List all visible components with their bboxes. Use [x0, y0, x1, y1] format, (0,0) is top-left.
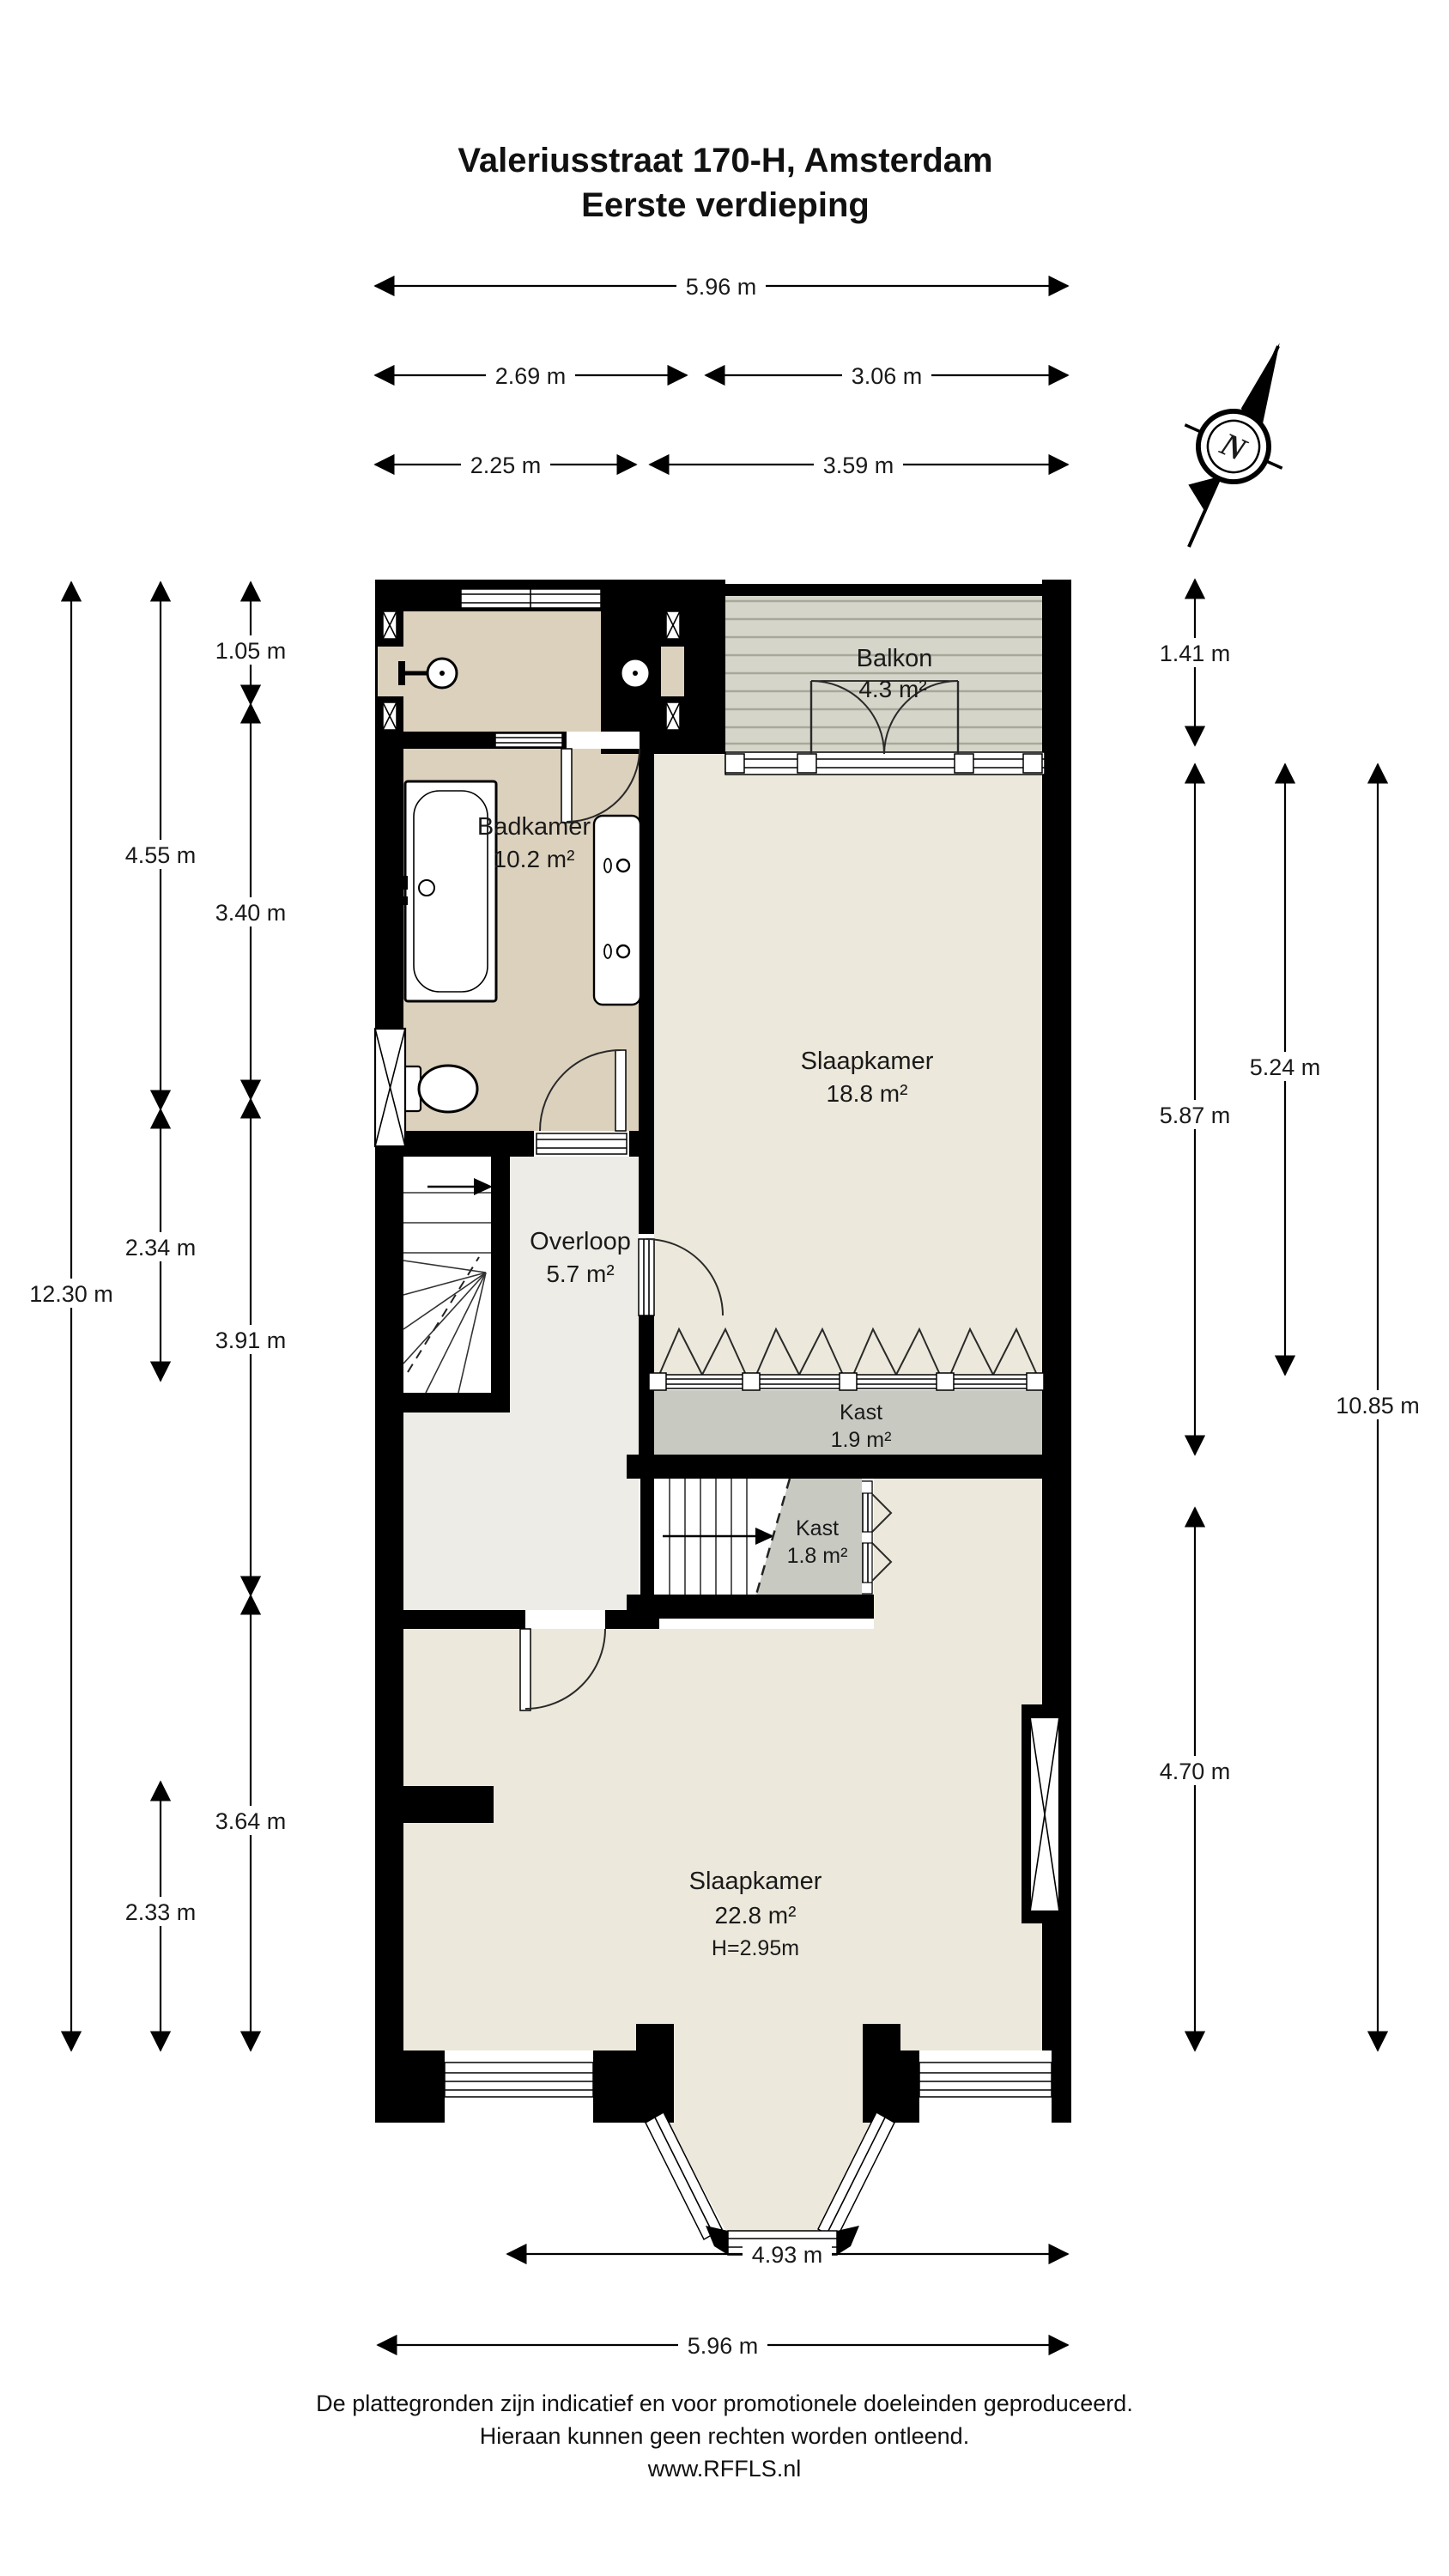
- rail-post: [725, 754, 744, 773]
- wall-stair2-left: [640, 1479, 654, 1597]
- wall-left-outer: [375, 580, 403, 2050]
- wall-bottom-corner-left: [375, 2050, 445, 2123]
- dim-top-269: 2.69 m: [375, 361, 687, 390]
- bedroom2-upper-floor: [874, 1479, 1042, 1633]
- room-kast2-area: 1.8 m²: [787, 1544, 848, 1568]
- threshold-badkamer-door: [537, 1133, 627, 1154]
- title-block: Valeriusstraat 170-H, Amsterdam Eerste v…: [458, 142, 992, 224]
- page-title: Valeriusstraat 170-H, Amsterdam: [458, 142, 992, 179]
- dim-left-1230: 12.30 m: [20, 582, 123, 2050]
- wall-niche-right: [661, 647, 684, 696]
- footer-website: www.RFFLS.nl: [647, 2456, 802, 2482]
- closet-post: [1027, 1373, 1044, 1390]
- room-slaapkamer2-name: Slaapkamer: [689, 1868, 822, 1895]
- svg-text:5.96 m: 5.96 m: [688, 2333, 759, 2359]
- dim-left-233: 2.33 m: [116, 1782, 205, 2050]
- room-slaapkamer2-ceiling: H=2.95m: [712, 1936, 799, 1960]
- dim-total-width: 5.96 m: [375, 271, 1068, 301]
- svg-text:5.24 m: 5.24 m: [1250, 1054, 1321, 1080]
- dim-right-470: 4.70 m: [1150, 1508, 1240, 2050]
- dimensions-left: 12.30 m 4.55 m 2.34 m 2.33 m 1.05 m 3.40…: [20, 582, 295, 2050]
- bay-mullion-right: [837, 2226, 859, 2255]
- chimney-shaft: [1030, 1717, 1059, 1911]
- dimensions-right: 1.41 m 5.87 m 4.70 m 5.24 m 10.85 m: [1150, 580, 1429, 2050]
- room-slaapkamer1-name: Slaapkamer: [801, 1048, 934, 1075]
- svg-text:4.55 m: 4.55 m: [125, 842, 197, 868]
- window-strip-divider: [495, 733, 562, 747]
- closet-post: [840, 1373, 857, 1390]
- room-overloop-area: 5.7 m²: [546, 1261, 614, 1287]
- wall-bay-pier-left: [636, 2024, 674, 2052]
- svg-text:1.05 m: 1.05 m: [215, 638, 287, 664]
- wall-shaft-lower-right: [666, 702, 680, 730]
- room-balkon-area: 4.3 m²: [858, 676, 926, 702]
- footer-line-1: De plattegronden zijn indicatief en voor…: [316, 2391, 1133, 2416]
- svg-text:12.30 m: 12.30 m: [29, 1281, 113, 1307]
- svg-text:4.93 m: 4.93 m: [752, 2242, 823, 2268]
- room-overloop-name: Overloop: [530, 1228, 631, 1255]
- svg-text:3.91 m: 3.91 m: [215, 1327, 287, 1353]
- dim-bottom-596: 5.96 m: [378, 2330, 1068, 2360]
- dim-left-455: 4.55 m: [116, 582, 205, 1109]
- svg-text:10.85 m: 10.85 m: [1336, 1393, 1420, 1419]
- window-top-strip: [461, 589, 601, 608]
- wall-shaft-lower-left: [383, 702, 397, 730]
- dim-left-105: 1.05 m: [206, 582, 295, 704]
- rail-post: [1023, 754, 1042, 773]
- svg-text:3.06 m: 3.06 m: [852, 363, 923, 389]
- wall-overloop-bottom: [375, 1610, 659, 1629]
- dim-left-234: 2.34 m: [116, 1109, 205, 1381]
- wall-stair-bottom: [375, 1393, 510, 1413]
- dim-right-1085: 10.85 m: [1326, 764, 1429, 2050]
- dimensions-bottom: 4.93 m 5.96 m: [378, 2239, 1068, 2360]
- svg-text:4.70 m: 4.70 m: [1160, 1759, 1231, 1784]
- svg-text:2.33 m: 2.33 m: [125, 1899, 197, 1925]
- dim-bottom-493: 4.93 m: [507, 2239, 1068, 2269]
- dim-right-524: 5.24 m: [1240, 764, 1330, 1375]
- floorplan-page: Valeriusstraat 170-H, Amsterdam Eerste v…: [0, 0, 1449, 2576]
- dimensions-top: 5.96 m 2.69 m 3.06 m 2.25 m 3.59 m: [375, 271, 1068, 479]
- svg-text:5.96 m: 5.96 m: [686, 274, 757, 300]
- stair-straight: [654, 1479, 774, 1595]
- opening-overloop-slaapkamer2: [525, 1610, 605, 1629]
- svg-text:1.41 m: 1.41 m: [1160, 641, 1231, 666]
- svg-text:3.40 m: 3.40 m: [215, 900, 287, 926]
- dim-left-391: 3.91 m: [206, 1099, 295, 1595]
- wall-shaft-upper-left: [383, 611, 397, 639]
- room-kast2-name: Kast: [796, 1516, 839, 1540]
- wall-stair-right: [491, 1157, 510, 1393]
- page-subtitle: Eerste verdieping: [581, 186, 870, 224]
- toilet: [400, 1066, 477, 1112]
- dim-right-141: 1.41 m: [1150, 580, 1240, 745]
- dim-right-587: 5.87 m: [1150, 764, 1240, 1455]
- wall-shaft-upper-right: [666, 611, 680, 639]
- balcony-railing: [725, 752, 1045, 775]
- washstand-counter: [594, 816, 640, 1005]
- washbasin-right: [621, 659, 659, 688]
- wall-left-step: [375, 1786, 494, 1823]
- dim-left-340: 3.40 m: [206, 704, 295, 1099]
- dim-top-306: 3.06 m: [706, 361, 1068, 390]
- room-slaapkamer2-area: 22.8 m²: [715, 1902, 797, 1929]
- wall-kast2-bottom: [627, 1595, 874, 1619]
- floorplan-canvas: Valeriusstraat 170-H, Amsterdam Eerste v…: [0, 0, 1449, 2576]
- wall-bottom-mid-left: [593, 2050, 674, 2123]
- svg-text:5.87 m: 5.87 m: [1160, 1103, 1231, 1128]
- dim-top-359: 3.59 m: [650, 450, 1068, 479]
- wall-bottom-corner-right: [1052, 2050, 1071, 2123]
- bay-mullion-left: [706, 2226, 728, 2255]
- bath-tap-icon: [398, 896, 408, 905]
- wall-kast1-bottom: [627, 1455, 1065, 1479]
- dim-top-225: 2.25 m: [375, 450, 636, 479]
- rail-post: [797, 754, 816, 773]
- wall-bottom-mid-right: [863, 2050, 919, 2123]
- window-bottom-left: [445, 2063, 593, 2097]
- footer-disclaimer: De plattegronden zijn indicatief en voor…: [316, 2391, 1133, 2482]
- rail-post: [955, 754, 973, 773]
- closet-post: [743, 1373, 760, 1390]
- wall-bay-pier-right: [863, 2024, 900, 2052]
- compass-rose: N: [1140, 321, 1328, 568]
- svg-text:3.59 m: 3.59 m: [823, 453, 894, 478]
- room-slaapkamer2-floor: [403, 1629, 1042, 2050]
- closet-post: [649, 1373, 666, 1390]
- room-floors: [403, 596, 1045, 2232]
- wall-balcony-top: [725, 584, 1069, 596]
- room-balkon-name: Balkon: [857, 645, 933, 672]
- opening-strip-badkamer: [567, 732, 640, 749]
- svg-text:2.69 m: 2.69 m: [495, 363, 567, 389]
- svg-text:2.34 m: 2.34 m: [125, 1235, 197, 1261]
- svg-text:2.25 m: 2.25 m: [470, 453, 542, 478]
- svg-text:3.64 m: 3.64 m: [215, 1808, 287, 1834]
- room-badkamer-area: 10.2 m²: [494, 846, 575, 872]
- stair-winder: [403, 1157, 493, 1393]
- footer-line-2: Hieraan kunnen geen rechten worden ontle…: [480, 2423, 969, 2449]
- room-slaapkamer1-area: 18.8 m²: [827, 1080, 908, 1107]
- room-kast1-area: 1.9 m²: [831, 1428, 892, 1452]
- window-bottom-right: [919, 2063, 1052, 2097]
- room-badkamer-name: Badkamer: [477, 813, 591, 841]
- closet-post: [937, 1373, 954, 1390]
- duct-shaft-badkamer: [375, 1029, 405, 1146]
- dim-left-364: 3.64 m: [206, 1595, 295, 2050]
- room-kast1-name: Kast: [840, 1400, 882, 1425]
- bath-tap-icon: [398, 876, 408, 890]
